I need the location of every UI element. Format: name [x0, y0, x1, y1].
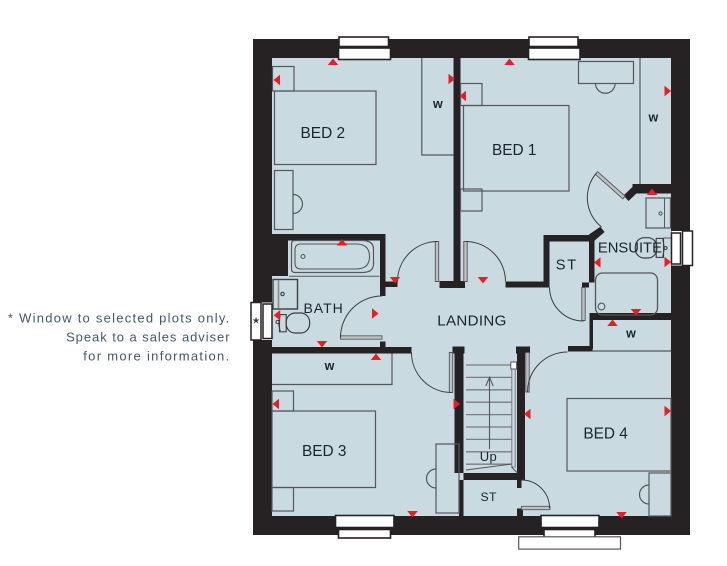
svg-text:* Window to selected plots onl: * Window to selected plots only. — [8, 310, 231, 325]
svg-text:Up: Up — [480, 449, 497, 464]
svg-text:w: w — [324, 359, 335, 373]
svg-text:ST: ST — [481, 490, 498, 504]
svg-text:w: w — [625, 326, 636, 340]
svg-text:ST: ST — [556, 258, 578, 274]
svg-text:Speak to a sales adviser: Speak to a sales adviser — [66, 329, 230, 344]
svg-text:ENSUITE: ENSUITE — [598, 240, 662, 256]
svg-text:BED 2: BED 2 — [301, 125, 345, 142]
svg-text:★: ★ — [252, 316, 260, 326]
svg-text:w: w — [432, 97, 443, 111]
svg-text:BED 3: BED 3 — [302, 443, 346, 460]
svg-text:BED 4: BED 4 — [583, 426, 628, 443]
svg-text:BED 1: BED 1 — [492, 142, 536, 159]
svg-text:LANDING: LANDING — [437, 312, 507, 329]
svg-text:w: w — [648, 110, 659, 124]
svg-text:for more information.: for more information. — [83, 348, 230, 363]
svg-text:BATH: BATH — [303, 300, 343, 316]
